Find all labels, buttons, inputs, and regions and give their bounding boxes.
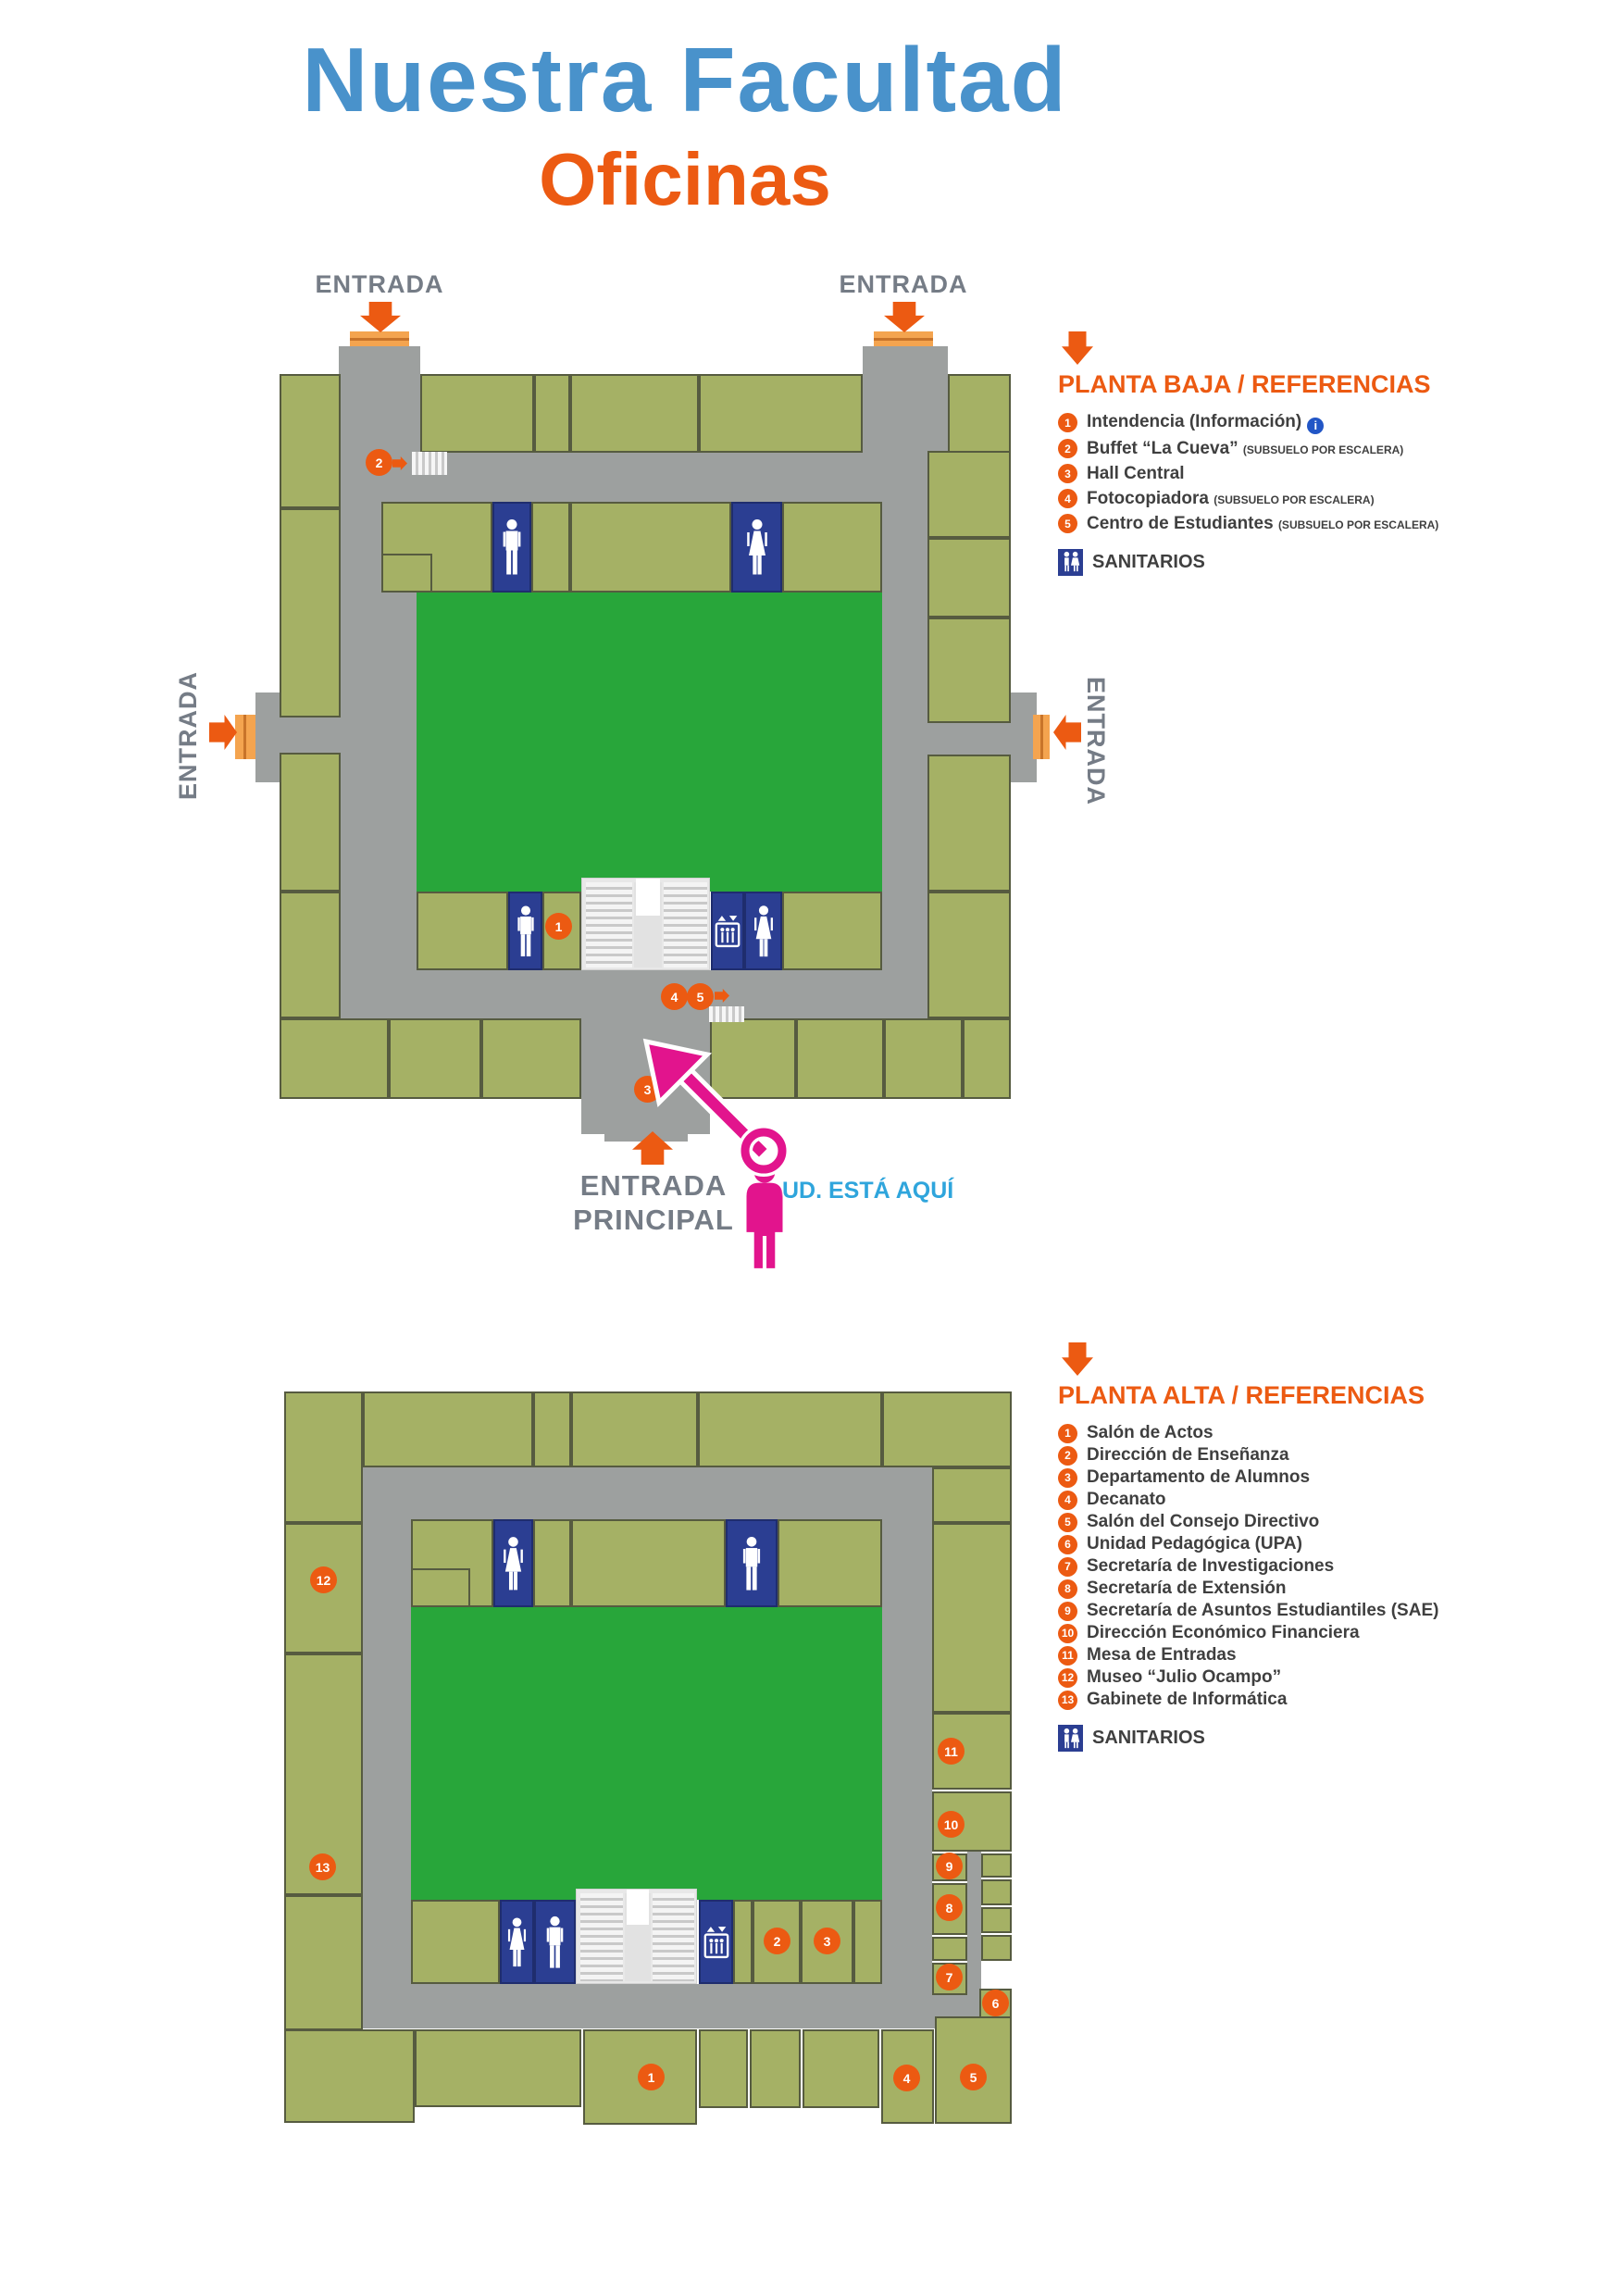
legend-item-label: Centro de Estudiantes (SUBSUELO POR ESCA… bbox=[1087, 514, 1438, 534]
elevator-cell bbox=[711, 892, 744, 970]
sanitarios-icon bbox=[1058, 549, 1083, 576]
room bbox=[699, 2029, 748, 2108]
room bbox=[570, 502, 731, 593]
legend-item: 5 Centro de Estudiantes (SUBSUELO POR ES… bbox=[1058, 514, 1502, 534]
room bbox=[699, 374, 863, 453]
wc-women-cell bbox=[731, 502, 782, 593]
entrance-vestibule bbox=[255, 717, 377, 753]
room bbox=[733, 1900, 753, 1984]
courtyard bbox=[411, 1607, 882, 1900]
legend-item: 4Decanato bbox=[1058, 1490, 1502, 1510]
room bbox=[280, 508, 341, 717]
room bbox=[411, 1568, 470, 1607]
map-marker: 12 bbox=[310, 1566, 337, 1593]
legend-item-label: Departamento de Alumnos bbox=[1087, 1467, 1310, 1488]
legend-item-number: 2 bbox=[1058, 439, 1077, 458]
room bbox=[363, 1391, 533, 1467]
map-marker: 6 bbox=[982, 1990, 1009, 2016]
legend-item-text: Centro de Estudiantes bbox=[1087, 514, 1274, 533]
room bbox=[778, 1519, 882, 1607]
legend-title: PLANTA ALTA / REFERENCIAS bbox=[1058, 1381, 1502, 1410]
legend-item-label: Salón del Consejo Directivo bbox=[1087, 1512, 1319, 1532]
stair-flight bbox=[586, 882, 632, 967]
stair-entry bbox=[627, 1890, 649, 1925]
entrance-door bbox=[1033, 715, 1050, 759]
courtyard bbox=[417, 593, 882, 892]
room bbox=[803, 2029, 879, 2108]
woman-icon bbox=[506, 1915, 528, 1969]
room bbox=[481, 1018, 581, 1099]
entrance-arrow-icon bbox=[884, 302, 925, 332]
legend-item: 2Dirección de Enseñanza bbox=[1058, 1445, 1502, 1466]
legend-item-text: Intendencia (Información) bbox=[1087, 412, 1301, 431]
stair-entry bbox=[636, 879, 660, 916]
corridor bbox=[341, 593, 417, 1018]
entrance-door bbox=[874, 331, 933, 346]
elevator-icon bbox=[714, 914, 741, 949]
woman-icon bbox=[745, 518, 769, 576]
room bbox=[782, 502, 882, 593]
legend-item-number: 1 bbox=[1058, 413, 1077, 432]
legend-item-number: 3 bbox=[1058, 464, 1077, 483]
room bbox=[420, 374, 534, 453]
sanitarios-row: SANITARIOS bbox=[1058, 1725, 1502, 1752]
room bbox=[750, 2029, 801, 2108]
room bbox=[284, 1895, 363, 2030]
room bbox=[782, 892, 882, 970]
legend-item: 1 Intendencia (Información)i bbox=[1058, 412, 1502, 434]
legend-item: 3Departamento de Alumnos bbox=[1058, 1467, 1502, 1488]
entrance-arrow-icon bbox=[360, 302, 401, 332]
elevator-cell bbox=[699, 1900, 733, 1984]
room bbox=[884, 1018, 963, 1099]
legend-item-label: Dirección de Enseñanza bbox=[1087, 1445, 1289, 1466]
legend-item-number: 10 bbox=[1058, 1624, 1077, 1643]
legend-item-label: Dirección Económico Financiera bbox=[1087, 1623, 1360, 1643]
planta-baja-map: ENTRADA ENTRADA ENTRADA ENTRADA 2 1 4 5 … bbox=[0, 0, 1618, 1342]
room bbox=[927, 538, 1011, 618]
map-marker: 3 bbox=[814, 1928, 840, 1954]
room bbox=[280, 1018, 389, 1099]
man-icon bbox=[501, 518, 523, 576]
entrance-vestibule bbox=[339, 346, 420, 454]
legend-item-number: 6 bbox=[1058, 1535, 1077, 1554]
entrance-arrow-icon bbox=[1053, 715, 1081, 750]
room bbox=[415, 2029, 581, 2107]
legend-item-number: 3 bbox=[1058, 1468, 1077, 1488]
sanitarios-label: SANITARIOS bbox=[1092, 552, 1205, 573]
corridor bbox=[363, 1984, 981, 2028]
map-marker: 13 bbox=[309, 1853, 336, 1880]
corridor bbox=[363, 1467, 932, 1519]
room bbox=[963, 1018, 1011, 1099]
room bbox=[927, 755, 1011, 892]
map-marker: 8 bbox=[936, 1894, 963, 1921]
woman-icon bbox=[753, 905, 775, 958]
you-are-here-label: UD. ESTÁ AQUÍ bbox=[782, 1178, 953, 1204]
map-marker: 10 bbox=[938, 1811, 965, 1838]
legend-item-label: Secretaría de Asuntos Estudiantiles (SAE… bbox=[1087, 1601, 1438, 1621]
planta-alta-legend: PLANTA ALTA / REFERENCIAS 1Salón de Acto… bbox=[1058, 1342, 1502, 1752]
legend-item-label: Mesa de Entradas bbox=[1087, 1645, 1237, 1666]
legend-item-note: (SUBSUELO POR ESCALERA) bbox=[1243, 443, 1403, 456]
legend-item-number: 11 bbox=[1058, 1646, 1077, 1666]
room bbox=[411, 1900, 500, 1984]
legend-item-text: Fotocopiadora bbox=[1087, 489, 1209, 508]
man-icon bbox=[741, 1536, 763, 1591]
map-marker: 2 bbox=[764, 1928, 790, 1954]
room bbox=[932, 1523, 1012, 1713]
corridor bbox=[882, 1467, 932, 1984]
legend-item-text: Buffet “La Cueva” bbox=[1087, 439, 1238, 458]
legend-item: 1Salón de Actos bbox=[1058, 1423, 1502, 1443]
stairs-small bbox=[412, 452, 447, 475]
room bbox=[534, 374, 570, 453]
wc-women-cell bbox=[500, 1900, 534, 1984]
room bbox=[853, 1900, 882, 1984]
room bbox=[932, 1467, 1012, 1523]
legend-item-label: Buffet “La Cueva” (SUBSUELO POR ESCALERA… bbox=[1087, 439, 1403, 459]
map-marker: 2 bbox=[366, 449, 392, 476]
legend-item-number: 9 bbox=[1058, 1602, 1077, 1621]
map-marker: 4 bbox=[661, 983, 688, 1010]
legend-item-number: 8 bbox=[1058, 1579, 1077, 1599]
legend-item-label: Decanato bbox=[1087, 1490, 1166, 1510]
stair-flight bbox=[580, 1893, 623, 1981]
legend-item: 2 Buffet “La Cueva” (SUBSUELO POR ESCALE… bbox=[1058, 439, 1502, 459]
wc-men-cell bbox=[508, 892, 542, 970]
legend-item-number: 5 bbox=[1058, 514, 1077, 533]
wc-men-cell bbox=[726, 1519, 778, 1607]
legend-item: 11Mesa de Entradas bbox=[1058, 1645, 1502, 1666]
map-marker: 1 bbox=[545, 913, 572, 940]
entrance-label: ENTRADA bbox=[811, 270, 996, 299]
room bbox=[533, 1391, 571, 1467]
stairs bbox=[576, 1889, 697, 1984]
legend-item: 3 Hall Central bbox=[1058, 464, 1502, 484]
room bbox=[981, 1907, 1012, 1933]
legend-title: PLANTA BAJA / REFERENCIAS bbox=[1058, 370, 1502, 399]
room bbox=[927, 892, 1011, 1018]
entrance-vestibule bbox=[863, 346, 948, 454]
room bbox=[882, 1391, 1012, 1467]
man-icon bbox=[544, 1915, 566, 1969]
legend-item: 7Secretaría de Investigaciones bbox=[1058, 1556, 1502, 1577]
room bbox=[280, 374, 341, 508]
room bbox=[533, 1519, 571, 1607]
legend-item: 8Secretaría de Extensión bbox=[1058, 1578, 1502, 1599]
legend-item: 4 Fotocopiadora (SUBSUELO POR ESCALERA) bbox=[1058, 489, 1502, 509]
woman-icon bbox=[502, 1536, 525, 1591]
legend-item-number: 4 bbox=[1058, 489, 1077, 508]
room bbox=[280, 753, 341, 892]
room bbox=[698, 1391, 882, 1467]
info-icon: i bbox=[1307, 418, 1324, 434]
entrance-arrow-icon bbox=[209, 715, 237, 750]
map-marker: 9 bbox=[936, 1853, 963, 1879]
elevator-icon bbox=[703, 1925, 730, 1960]
legend-item-label: Museo “Julio Ocampo” bbox=[1087, 1667, 1281, 1688]
legend-item-number: 5 bbox=[1058, 1513, 1077, 1532]
man-icon bbox=[516, 905, 536, 958]
legend-item-number: 1 bbox=[1058, 1424, 1077, 1443]
corridor bbox=[882, 451, 927, 1018]
wc-men-cell bbox=[492, 502, 531, 593]
legend-item: 12Museo “Julio Ocampo” bbox=[1058, 1667, 1502, 1688]
legend-arrow-icon bbox=[1062, 331, 1093, 365]
room bbox=[417, 892, 508, 970]
you-are-here-ring-icon bbox=[734, 1121, 793, 1180]
room bbox=[948, 374, 1011, 453]
legend-item: 10Dirección Económico Financiera bbox=[1058, 1623, 1502, 1643]
legend-item: 9Secretaría de Asuntos Estudiantiles (SA… bbox=[1058, 1601, 1502, 1621]
map-marker: 4 bbox=[893, 2065, 920, 2091]
room bbox=[280, 892, 341, 1018]
legend-item-label: Secretaría de Investigaciones bbox=[1087, 1556, 1334, 1577]
legend-item: 13Gabinete de Informática bbox=[1058, 1690, 1502, 1710]
map-marker: 11 bbox=[938, 1738, 965, 1765]
legend-item-number: 7 bbox=[1058, 1557, 1077, 1577]
corridor bbox=[363, 1467, 411, 2028]
legend-item-label: Secretaría de Extensión bbox=[1087, 1578, 1286, 1599]
legend-item-number: 4 bbox=[1058, 1491, 1077, 1510]
room bbox=[571, 1391, 698, 1467]
legend-item-label: Gabinete de Informática bbox=[1087, 1690, 1287, 1710]
legend-item-label: Unidad Pedagógica (UPA) bbox=[1087, 1534, 1302, 1554]
poster-canvas: Nuestra Facultad Oficinas bbox=[0, 0, 1618, 2296]
room bbox=[284, 2029, 415, 2123]
room bbox=[981, 1935, 1012, 1961]
legend-item-text: Hall Central bbox=[1087, 464, 1185, 483]
legend-item-number: 2 bbox=[1058, 1446, 1077, 1466]
sanitarios-icon bbox=[1058, 1725, 1083, 1752]
wc-men-cell bbox=[534, 1900, 576, 1984]
legend-item-note: (SUBSUELO POR ESCALERA) bbox=[1278, 518, 1438, 531]
room bbox=[284, 1391, 363, 1523]
map-marker: 5 bbox=[960, 2064, 987, 2090]
map-marker: 1 bbox=[638, 2064, 665, 2090]
room bbox=[381, 554, 432, 593]
room bbox=[927, 451, 1011, 538]
legend-item-number: 12 bbox=[1058, 1668, 1077, 1688]
legend-item-note: (SUBSUELO POR ESCALERA) bbox=[1213, 493, 1374, 506]
entrance-label: ENTRADA bbox=[174, 659, 203, 812]
sanitarios-label: SANITARIOS bbox=[1092, 1728, 1205, 1749]
legend-item-label: Fotocopiadora (SUBSUELO POR ESCALERA) bbox=[1087, 489, 1375, 509]
room bbox=[570, 374, 699, 453]
planta-baja-legend: PLANTA BAJA / REFERENCIAS 1 Intendencia … bbox=[1058, 331, 1502, 576]
map-marker: 5 bbox=[687, 983, 714, 1010]
stair-flight bbox=[653, 1893, 694, 1981]
entrance-door bbox=[235, 715, 255, 759]
entrance-door bbox=[350, 331, 409, 346]
legend-arrow-icon bbox=[1062, 1342, 1093, 1376]
wc-women-cell bbox=[744, 892, 782, 970]
entrance-label: ENTRADA bbox=[1081, 665, 1110, 817]
stairs bbox=[581, 878, 710, 970]
entrance-vestibule bbox=[926, 723, 1011, 758]
corridor bbox=[967, 1852, 981, 1984]
map-marker: 7 bbox=[936, 1964, 963, 1990]
room bbox=[981, 1853, 1012, 1878]
legend-item-label: Intendencia (Información)i bbox=[1087, 412, 1324, 434]
legend-item-label: Salón de Actos bbox=[1087, 1423, 1213, 1443]
room bbox=[531, 502, 570, 593]
stair-flight bbox=[664, 882, 707, 967]
wc-women-cell bbox=[493, 1519, 533, 1607]
room bbox=[932, 1937, 967, 1961]
room bbox=[571, 1519, 726, 1607]
room bbox=[927, 618, 1011, 723]
room bbox=[981, 1879, 1012, 1905]
entrance-label: ENTRADA bbox=[287, 270, 472, 299]
legend-item: 6Unidad Pedagógica (UPA) bbox=[1058, 1534, 1502, 1554]
legend-item-label: Hall Central bbox=[1087, 464, 1185, 484]
legend-item-number: 13 bbox=[1058, 1691, 1077, 1710]
legend-item: 5Salón del Consejo Directivo bbox=[1058, 1512, 1502, 1532]
room bbox=[389, 1018, 481, 1099]
sanitarios-row: SANITARIOS bbox=[1058, 549, 1502, 576]
